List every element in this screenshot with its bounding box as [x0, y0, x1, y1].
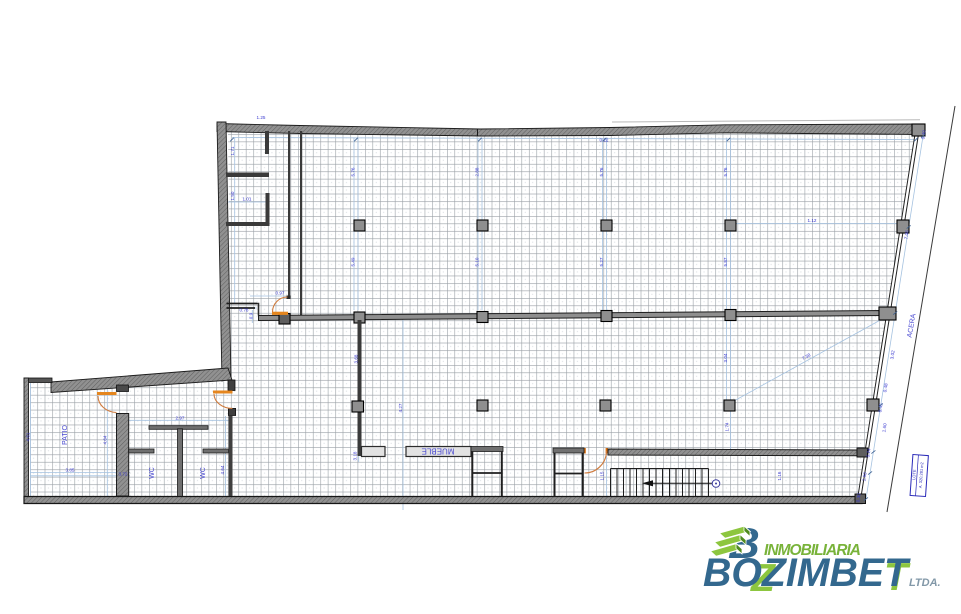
svg-text:1.25: 1.25	[257, 115, 266, 120]
svg-text:0.48: 0.48	[882, 383, 888, 393]
svg-text:1.12: 1.12	[808, 218, 817, 223]
svg-text:3.68: 3.68	[354, 354, 359, 363]
svg-text:3.85: 3.85	[66, 468, 75, 473]
svg-text:4.61: 4.61	[26, 432, 31, 441]
svg-text:0.97: 0.97	[276, 291, 285, 296]
svg-text:1.50: 1.50	[230, 191, 235, 200]
svg-text:3.02: 3.02	[889, 350, 895, 360]
svg-text:0.24: 0.24	[865, 448, 871, 458]
svg-text:1.16: 1.16	[777, 471, 782, 480]
svg-text:3.04: 3.04	[723, 353, 728, 362]
svg-text:5.49: 5.49	[351, 257, 356, 266]
svg-text:4.64: 4.64	[220, 465, 225, 474]
svg-text:5.76: 5.76	[599, 167, 604, 176]
svg-text:PATIO: PATIO	[62, 424, 69, 445]
svg-text:0.45: 0.45	[877, 403, 883, 413]
svg-text:5.27: 5.27	[599, 257, 604, 266]
svg-text:1.60: 1.60	[861, 472, 867, 482]
svg-text:BOZIMBET: BOZIMBET	[703, 551, 911, 595]
svg-text:5.87: 5.87	[723, 257, 728, 266]
svg-text:0.9: 0.9	[249, 312, 254, 319]
svg-text:5.10: 5.10	[475, 257, 480, 266]
svg-text:4.64: 4.64	[103, 435, 108, 444]
svg-text:5.76: 5.76	[351, 167, 356, 176]
svg-text:ACERA: ACERA	[906, 313, 917, 338]
svg-text:3.18: 3.18	[353, 451, 358, 460]
svg-text:WC: WC	[149, 467, 156, 479]
svg-text:5.76: 5.76	[723, 167, 728, 176]
svg-text:LTDA.: LTDA.	[909, 577, 941, 589]
svg-text:1.71: 1.71	[230, 146, 235, 155]
svg-text:1.15: 1.15	[600, 471, 605, 480]
svg-text:4.27: 4.27	[398, 403, 403, 412]
svg-text:3.72: 3.72	[119, 472, 128, 477]
svg-text:2.88: 2.88	[475, 167, 480, 176]
svg-text:1.01: 1.01	[243, 197, 252, 202]
svg-text:0.40: 0.40	[920, 130, 926, 140]
svg-text:2.97: 2.97	[176, 415, 185, 420]
svg-text:LOTE: LOTE	[911, 469, 917, 480]
svg-text:WC: WC	[200, 467, 207, 479]
svg-text:A. 320.281 m2: A. 320.281 m2	[918, 461, 925, 488]
svg-text:0.78: 0.78	[240, 308, 249, 313]
svg-text:1.74: 1.74	[725, 422, 730, 431]
svg-text:MUEBLE: MUEBLE	[422, 447, 455, 456]
svg-text:1.60: 1.60	[881, 423, 887, 433]
svg-text:7.06: 7.06	[903, 230, 909, 240]
